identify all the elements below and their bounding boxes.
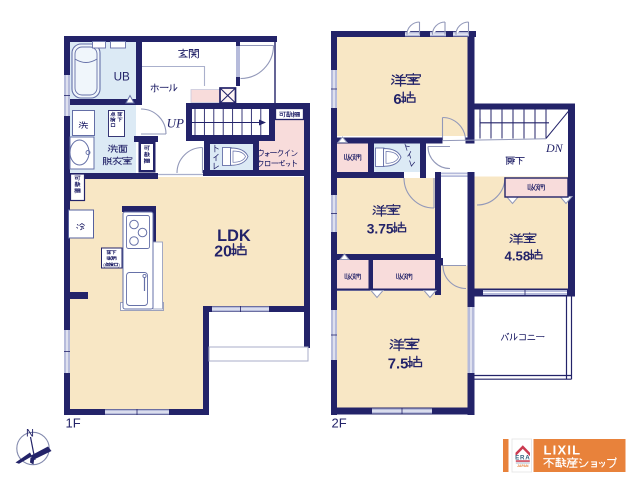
svg-text:3.75: 3.75 [367,222,394,237]
svg-text:20: 20 [214,244,232,261]
svg-text:2F: 2F [332,416,347,431]
svg-text:LDK: LDK [217,227,251,245]
svg-text:1F: 1F [66,416,81,431]
svg-text:6: 6 [393,92,401,108]
svg-text:UP: UP [167,116,184,131]
svg-text:4.58: 4.58 [504,249,530,264]
svg-text:N: N [26,428,34,440]
svg-text:DN: DN [545,141,564,155]
svg-text:7.5: 7.5 [388,357,409,373]
svg-text:JAPAN: JAPAN [517,464,529,468]
svg-text:LIXIL: LIXIL [544,443,582,458]
svg-text:UB: UB [114,71,130,84]
